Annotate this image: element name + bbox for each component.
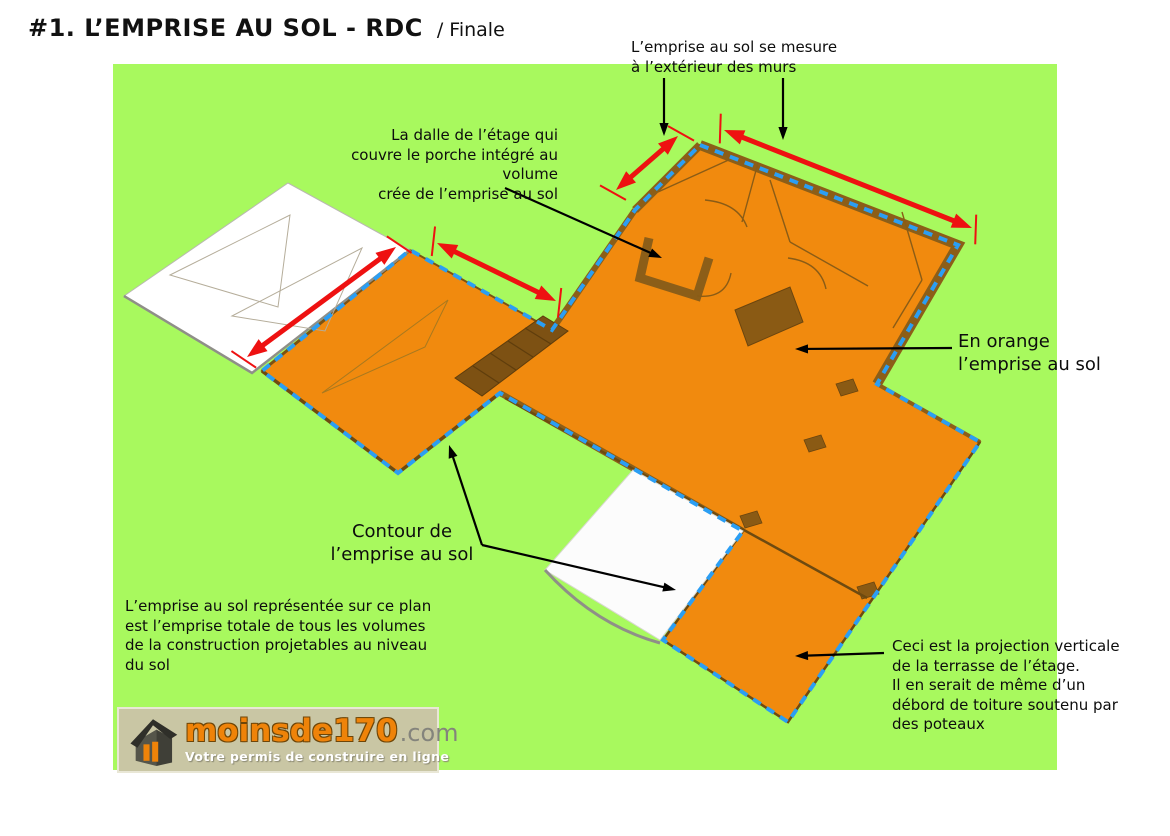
note-orange-footprint: En orange l’emprise au sol <box>958 330 1101 376</box>
note-contour-label: Contour de l’emprise au sol <box>328 520 476 566</box>
page-title: #1. L’EMPRISE AU SOL - RDC / Finale <box>28 14 505 42</box>
note-slab-porch: La dalle de l’étage qui couvre le porche… <box>298 126 558 204</box>
logo-moinsde170: moinsde170 .com Votre permis de construi… <box>117 707 439 773</box>
note-total-footprint: L’emprise au sol représentée sur ce plan… <box>125 597 431 675</box>
note-measure-exterior: L’emprise au sol se mesure à l’extérieur… <box>631 38 837 77</box>
logo-tagline: Votre permis de construire en ligne <box>185 749 459 764</box>
page-title-main: #1. L’EMPRISE AU SOL - RDC <box>28 14 423 42</box>
page-title-suffix: / Finale <box>437 19 505 41</box>
logo-tld: .com <box>400 718 459 748</box>
note-terrace-projection: Ceci est la projection verticale de la t… <box>892 637 1120 735</box>
logo-text: moinsde170 .com Votre permis de construi… <box>185 716 459 764</box>
logo-brand: moinsde170 <box>185 716 398 746</box>
logo-house-icon <box>127 712 179 768</box>
